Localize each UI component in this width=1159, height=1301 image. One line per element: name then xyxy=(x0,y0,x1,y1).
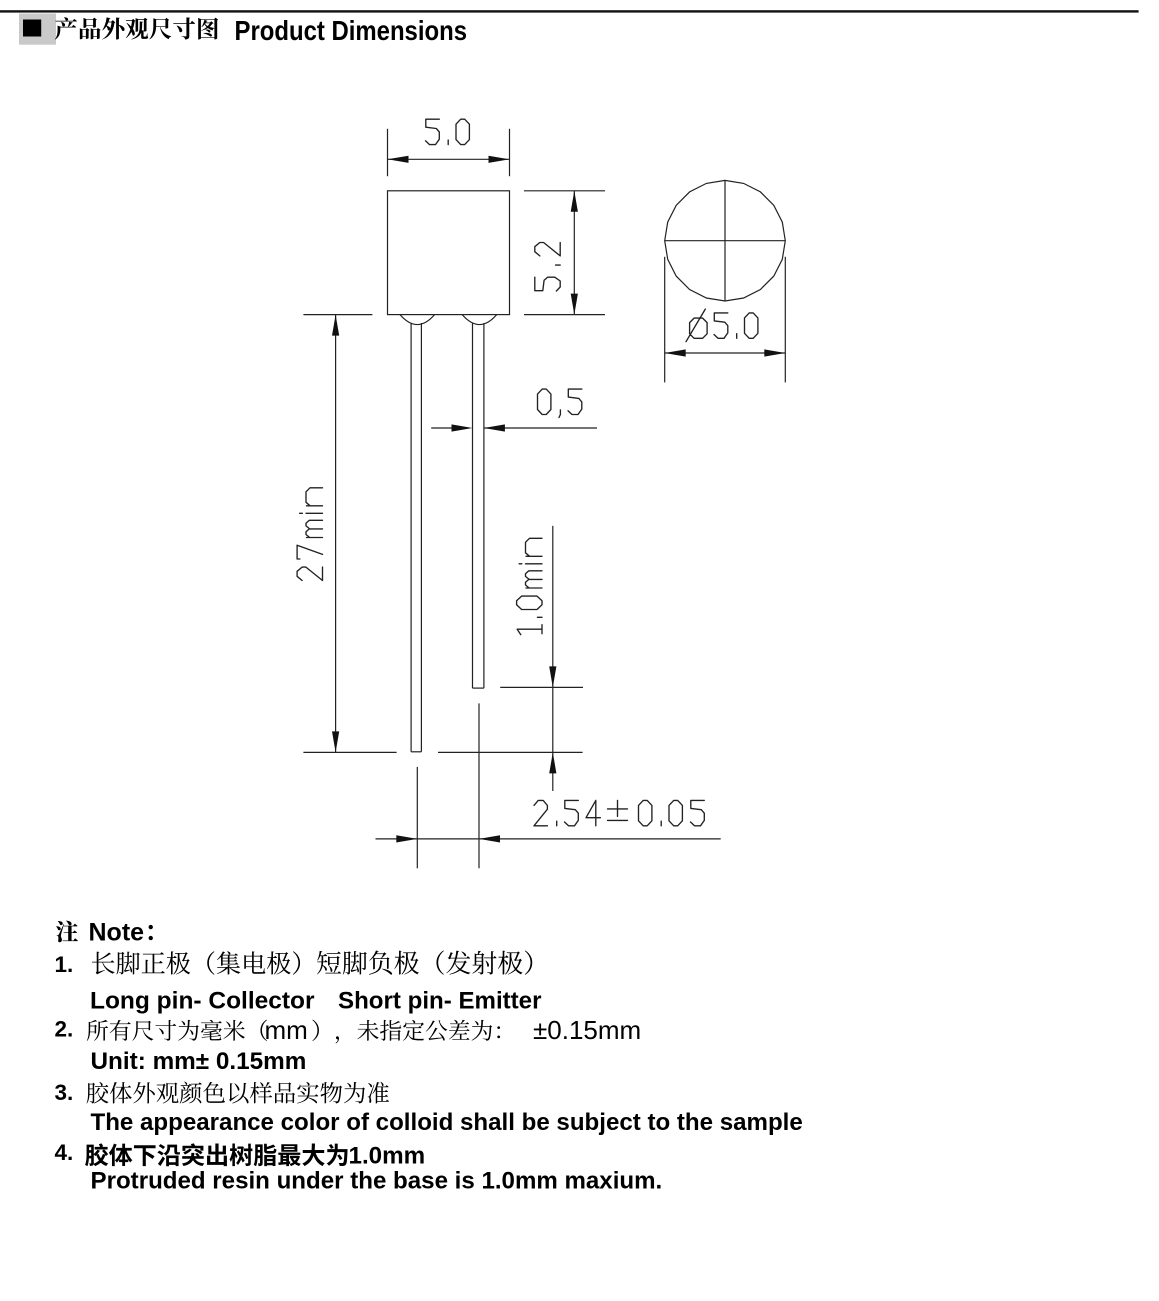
svg-text:The appearance color of colloi: The appearance color of colloid shall be… xyxy=(91,1109,803,1136)
svg-text:2.: 2. xyxy=(55,1017,74,1042)
svg-text:Product Dimensions: Product Dimensions xyxy=(235,15,468,46)
svg-text:Short pin- Emitter: Short pin- Emitter xyxy=(338,987,542,1014)
svg-text:3.: 3. xyxy=(55,1080,74,1105)
svg-text:Long pin- Collector: Long pin- Collector xyxy=(90,987,315,1014)
svg-text:±0.15mm: ±0.15mm xyxy=(533,1015,641,1045)
svg-text:4.: 4. xyxy=(55,1140,74,1165)
svg-text:1.: 1. xyxy=(55,952,74,977)
svg-text:mm: mm xyxy=(265,1015,308,1045)
svg-text:Unit: mm± 0.15mm: Unit: mm± 0.15mm xyxy=(91,1048,307,1075)
svg-text:1.0mm: 1.0mm xyxy=(349,1143,426,1170)
svg-text:Protruded resin under the base: Protruded resin under the base is 1.0mm … xyxy=(91,1167,663,1194)
svg-text:Note: Note xyxy=(89,919,145,947)
